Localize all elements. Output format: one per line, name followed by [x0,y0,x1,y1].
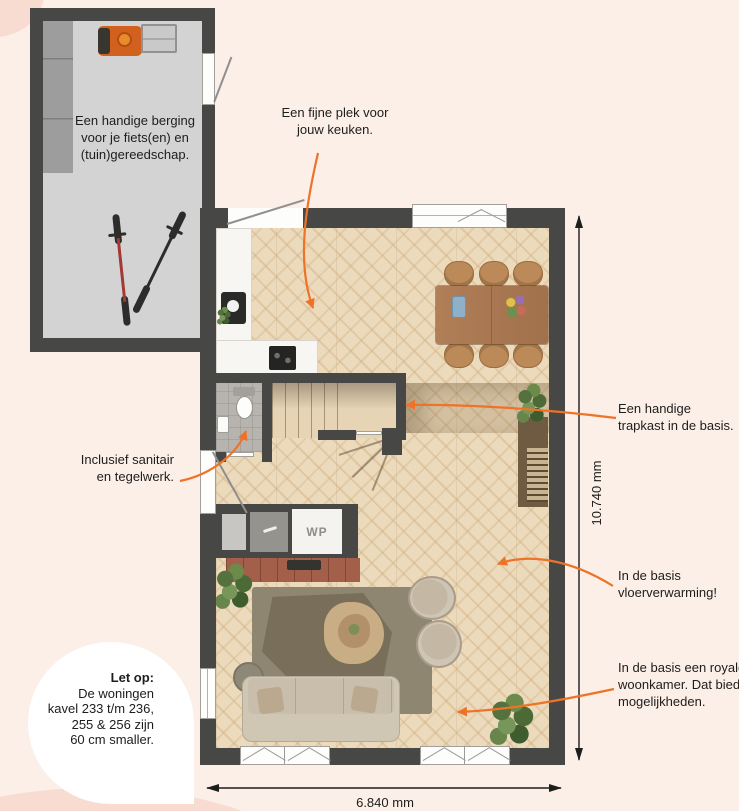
garage-door [202,53,215,105]
table-seam [491,286,492,344]
coffee-table-decor [338,614,370,648]
heat-pump-label: WP [306,525,327,539]
garden-window [420,746,510,765]
annotation-line: (tuin)gereedschap. [55,146,215,163]
vase-icon [452,296,466,318]
hand-basin-icon [217,416,229,433]
note-line: 255 & 256 zijn [30,717,154,733]
sofa-cushion [256,686,284,714]
house-wall-right [549,208,565,765]
annotation-trapkast: Een handige trapkast in de basis. [618,400,738,434]
house-wall-bottom [510,748,565,765]
window-divider [464,747,465,764]
width-dimension-label: 6.840 mm [330,795,440,810]
armchair [416,620,462,668]
lawn-mower-seat [117,32,132,47]
toilet-tank [233,387,255,396]
annotation-woonkamer: In de basis een royale woonkamer. Dat bi… [618,659,738,710]
plant-icon [486,692,538,746]
tv-icon [287,560,321,570]
annotation-line: Een handige berging [55,112,215,129]
flowers-icon [503,293,529,320]
garage-wall-left [30,8,43,352]
utility-panel [222,514,246,550]
annotation-line: In de basis een royale [618,659,738,676]
utility-panel-sink [250,512,288,552]
house-wall-bottom [330,748,420,765]
garage-wall-top [30,8,215,21]
sofa-cushion [350,685,379,714]
note-title: Let op: [30,670,154,686]
annotation-line: mogelijkheden. [618,693,738,710]
plant-icon [212,562,256,610]
toilet-icon [236,396,253,419]
dining-chair [444,261,474,288]
dining-chair [444,341,474,368]
note-line: 60 cm smaller. [30,732,154,748]
armchair [408,576,456,620]
annotation-vloerverwarming: In de basis vloerverwarming! [618,567,738,601]
bathroom-wall-right [262,373,272,462]
bike-frame [117,238,126,302]
dining-chair [479,341,509,368]
heat-pump-unit: WP [292,509,342,554]
dining-chair [479,261,509,288]
wall-cabinet-slats [527,448,548,502]
annotation-line: vloerverwarming! [618,584,738,601]
house-wall-top [303,208,412,228]
cooktop-icon [269,346,296,370]
note-line: De woningen [30,686,154,702]
dining-chair [513,341,543,368]
counter-plant-icon [216,306,232,325]
front-door [200,450,216,514]
garden-cart-icon [141,24,177,53]
note-text: Let op: De woningen kavel 233 t/m 236, 2… [30,670,154,748]
annotation-line: voor je fiets(en) en [55,129,215,146]
garden-window [240,746,330,765]
lawn-mower-hood [98,28,110,54]
note-line: kavel 233 t/m 236, [30,701,154,717]
annotation-line: Een fijne plek voor [255,104,415,121]
garage-door-swing [213,57,232,102]
annotation-line: Inclusief sanitair [52,451,174,468]
window-divider [284,747,285,764]
plant-icon [515,382,549,424]
wall-pier [382,428,402,455]
annotation-berging: Een handige berging voor je fiets(en) en… [55,112,215,163]
annotation-line: en tegelwerk. [52,468,174,485]
dining-chair [513,261,543,288]
annotation-line: jouw keuken. [255,121,415,138]
stair-closet-door [356,431,382,435]
annotation-line: trapkast in de basis. [618,417,738,434]
garage-wall-bottom [30,338,215,352]
window-midline [207,669,208,718]
annotation-line: Een handige [618,400,738,417]
stair-wall-top [266,373,406,383]
garage-wall-right [202,8,215,53]
height-dimension-label: 10.740 mm [589,438,604,548]
stair-wall-bottom [318,430,356,440]
house-wall-left [200,514,216,668]
bathroom-door [226,452,254,457]
staircase-shadow [272,383,396,409]
annotation-keuken: Een fijne plek voor jouw keuken. [255,104,415,138]
annotation-sanitair: Inclusief sanitair en tegelwerk. [52,451,174,485]
side-window [200,668,216,719]
house-wall-bottom [200,748,240,765]
floor-plan-page: WP [0,0,739,811]
annotation-line: In de basis [618,567,738,584]
annotation-line: woonkamer. Dat biedt [618,676,738,693]
house-wall-left [200,208,216,450]
